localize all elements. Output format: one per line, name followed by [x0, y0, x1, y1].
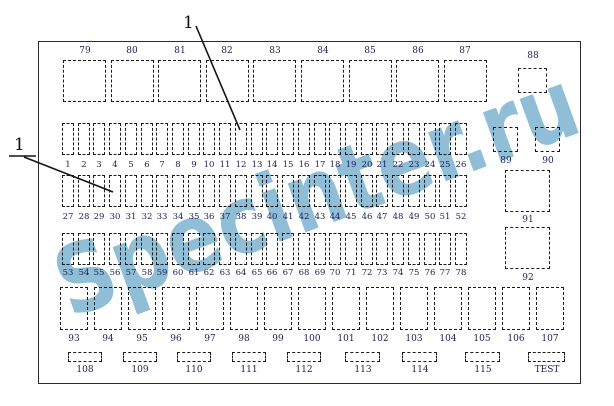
fuse-number: 64 — [233, 268, 249, 278]
terminal-box-label: 108 — [63, 365, 107, 375]
fuse-number: 30 — [107, 212, 123, 222]
fuse-number: 54 — [76, 268, 92, 278]
fuse-number: 74 — [390, 268, 406, 278]
terminal-box-110 — [177, 352, 211, 362]
relay-box-label: 89 — [486, 156, 526, 166]
fuse-slot-66 — [266, 233, 278, 265]
terminal-box-113 — [345, 352, 380, 362]
fuse-number: 9 — [186, 160, 202, 170]
terminal-box-label: 111 — [227, 365, 271, 375]
fuse-number: 69 — [312, 268, 328, 278]
fuse-number: 15 — [280, 160, 296, 170]
fuse-number: 13 — [249, 160, 265, 170]
fuse-number: 12 — [233, 160, 249, 170]
fuse-number: 26 — [453, 160, 469, 170]
fuse-slot-46 — [361, 175, 373, 207]
relay-box-label: 83 — [255, 46, 295, 56]
fuse-number: 32 — [139, 212, 155, 222]
fuse-number: 42 — [296, 212, 312, 222]
fuse-slot-13 — [251, 123, 263, 155]
fuse-slot-1 — [62, 123, 74, 155]
connector-box-94 — [94, 287, 122, 330]
terminal-box-114 — [402, 352, 437, 362]
fuse-slot-15 — [282, 123, 294, 155]
relay-box-label: 79 — [65, 46, 105, 56]
fuse-slot-10 — [203, 123, 215, 155]
fuse-number: 78 — [453, 268, 469, 278]
fuse-number: 49 — [406, 212, 422, 222]
terminal-box-label: 110 — [172, 365, 216, 375]
connector-box-103 — [400, 287, 428, 330]
fuse-number: 23 — [406, 160, 422, 170]
fuse-slot-69 — [314, 233, 326, 265]
relay-box-89 — [493, 127, 518, 152]
fuse-slot-52 — [455, 175, 467, 207]
fuse-slot-18 — [329, 123, 341, 155]
fuse-number: 31 — [123, 212, 139, 222]
fuse-slot-8 — [172, 123, 184, 155]
fuse-slot-3 — [93, 123, 105, 155]
relay-box-label: 88 — [513, 51, 553, 61]
fuse-panel-diagram: Specinter.ru 1 1 79808182838485868788123… — [0, 0, 614, 406]
relay-box-label: 86 — [398, 46, 438, 56]
fuse-number: 62 — [201, 268, 217, 278]
fuse-number: 43 — [312, 212, 328, 222]
terminal-box-111 — [232, 352, 266, 362]
fuse-slot-39 — [251, 175, 263, 207]
fuse-slot-63 — [219, 233, 231, 265]
relay-box-80 — [111, 60, 154, 102]
fuse-number: 5 — [123, 160, 139, 170]
fuse-number: 50 — [422, 212, 438, 222]
terminal-box-label: 109 — [118, 365, 162, 375]
fuse-number: 59 — [154, 268, 170, 278]
fuse-number: 4 — [107, 160, 123, 170]
fuse-number: 58 — [139, 268, 155, 278]
fuse-slot-71 — [345, 233, 357, 265]
fuse-number: 36 — [201, 212, 217, 222]
fuse-number: 7 — [154, 160, 170, 170]
terminal-box-108 — [68, 352, 102, 362]
fuse-slot-64 — [235, 233, 247, 265]
terminal-box-label: 114 — [398, 365, 442, 375]
fuse-slot-12 — [235, 123, 247, 155]
terminal-box-label: 115 — [461, 365, 505, 375]
fuse-slot-32 — [141, 175, 153, 207]
fuse-slot-58 — [141, 233, 153, 265]
fuse-number: 17 — [312, 160, 328, 170]
fuse-number: 44 — [327, 212, 343, 222]
fuse-slot-2 — [78, 123, 90, 155]
fuse-number: 28 — [76, 212, 92, 222]
terminal-box-label: TEST — [525, 365, 569, 375]
fuse-number: 48 — [390, 212, 406, 222]
fuse-slot-24 — [424, 123, 436, 155]
fuse-slot-38 — [235, 175, 247, 207]
relay-box-label: 82 — [207, 46, 247, 56]
fuse-slot-57 — [125, 233, 137, 265]
fuse-slot-9 — [188, 123, 200, 155]
fuse-number: 56 — [107, 268, 123, 278]
fuse-slot-35 — [188, 175, 200, 207]
fuse-slot-4 — [109, 123, 121, 155]
relay-box-label: 81 — [160, 46, 200, 56]
fuse-slot-29 — [93, 175, 105, 207]
fuse-number: 8 — [170, 160, 186, 170]
relay-box-86 — [396, 60, 439, 102]
relay-box-92 — [505, 227, 550, 269]
connector-box-101 — [332, 287, 360, 330]
callout-label-top: 1 — [183, 15, 194, 32]
fuse-slot-54 — [78, 233, 90, 265]
relay-box-79 — [63, 60, 106, 102]
fuse-slot-5 — [125, 123, 137, 155]
fuse-slot-59 — [156, 233, 168, 265]
fuse-slot-49 — [408, 175, 420, 207]
fuse-number: 77 — [437, 268, 453, 278]
fuse-slot-55 — [93, 233, 105, 265]
fuse-number: 63 — [217, 268, 233, 278]
fuse-number: 6 — [139, 160, 155, 170]
fuse-slot-76 — [424, 233, 436, 265]
fuse-slot-50 — [424, 175, 436, 207]
fuse-slot-56 — [109, 233, 121, 265]
relay-box-label: 80 — [112, 46, 152, 56]
fuse-number: 27 — [60, 212, 76, 222]
fuse-number: 51 — [437, 212, 453, 222]
fuse-number: 35 — [186, 212, 202, 222]
fuse-slot-20 — [361, 123, 373, 155]
fuse-slot-68 — [298, 233, 310, 265]
terminal-box-115 — [465, 352, 500, 362]
fuse-number: 38 — [233, 212, 249, 222]
fuse-slot-37 — [219, 175, 231, 207]
relay-box-label: 90 — [528, 156, 568, 166]
connector-box-100 — [298, 287, 326, 330]
fuse-slot-33 — [156, 175, 168, 207]
connector-box-107 — [536, 287, 564, 330]
fuse-slot-73 — [376, 233, 388, 265]
fuse-number: 2 — [76, 160, 92, 170]
fuse-slot-21 — [376, 123, 388, 155]
fuse-slot-28 — [78, 175, 90, 207]
fuse-slot-47 — [376, 175, 388, 207]
fuse-number: 20 — [359, 160, 375, 170]
relay-box-87 — [444, 60, 487, 102]
fuse-number: 68 — [296, 268, 312, 278]
fuse-number: 40 — [264, 212, 280, 222]
fuse-number: 60 — [170, 268, 186, 278]
fuse-slot-72 — [361, 233, 373, 265]
relay-box-91 — [505, 170, 550, 212]
relay-box-label: 91 — [508, 215, 548, 225]
fuse-slot-6 — [141, 123, 153, 155]
fuse-number: 72 — [359, 268, 375, 278]
connector-box-106 — [502, 287, 530, 330]
fuse-slot-43 — [314, 175, 326, 207]
fuse-slot-11 — [219, 123, 231, 155]
terminal-box-label: 112 — [282, 365, 326, 375]
relay-box-label: 84 — [303, 46, 343, 56]
fuse-number: 76 — [422, 268, 438, 278]
connector-box-93 — [60, 287, 88, 330]
relay-box-label: 92 — [508, 273, 548, 283]
fuse-slot-30 — [109, 175, 121, 207]
fuse-slot-16 — [298, 123, 310, 155]
fuse-slot-48 — [392, 175, 404, 207]
relay-box-88 — [518, 68, 547, 93]
fuse-number: 73 — [374, 268, 390, 278]
fuse-number: 39 — [249, 212, 265, 222]
fuse-slot-17 — [314, 123, 326, 155]
fuse-number: 45 — [343, 212, 359, 222]
connector-box-99 — [264, 287, 292, 330]
connector-box-105 — [468, 287, 496, 330]
fuse-slot-70 — [329, 233, 341, 265]
fuse-slot-42 — [298, 175, 310, 207]
fuse-slot-78 — [455, 233, 467, 265]
relay-box-83 — [253, 60, 296, 102]
relay-box-label: 87 — [445, 46, 485, 56]
fuse-slot-61 — [188, 233, 200, 265]
fuse-slot-65 — [251, 233, 263, 265]
relay-box-84 — [301, 60, 344, 102]
fuse-number: 25 — [437, 160, 453, 170]
terminal-box-label: 113 — [341, 365, 385, 375]
relay-box-label: 85 — [350, 46, 390, 56]
fuse-slot-31 — [125, 175, 137, 207]
fuse-number: 33 — [154, 212, 170, 222]
fuse-slot-26 — [455, 123, 467, 155]
fuse-number: 14 — [264, 160, 280, 170]
fuse-number: 75 — [406, 268, 422, 278]
fuse-number: 65 — [249, 268, 265, 278]
fuse-number: 10 — [201, 160, 217, 170]
fuse-number: 34 — [170, 212, 186, 222]
fuse-slot-53 — [62, 233, 74, 265]
fuse-slot-62 — [203, 233, 215, 265]
callout-label-left: 1 — [14, 137, 25, 154]
connector-box-95 — [128, 287, 156, 330]
fuse-slot-34 — [172, 175, 184, 207]
fuse-number: 47 — [374, 212, 390, 222]
fuse-slot-27 — [62, 175, 74, 207]
fuse-number: 52 — [453, 212, 469, 222]
fuse-slot-23 — [408, 123, 420, 155]
fuse-slot-51 — [439, 175, 451, 207]
fuse-slot-40 — [266, 175, 278, 207]
relay-box-90 — [535, 127, 560, 152]
fuse-number: 46 — [359, 212, 375, 222]
connector-box-98 — [230, 287, 258, 330]
fuse-number: 61 — [186, 268, 202, 278]
terminal-box-112 — [287, 352, 321, 362]
fuse-number: 24 — [422, 160, 438, 170]
terminal-box-109 — [123, 352, 157, 362]
connector-box-97 — [196, 287, 224, 330]
fuse-slot-77 — [439, 233, 451, 265]
fuse-number: 71 — [343, 268, 359, 278]
fuse-slot-36 — [203, 175, 215, 207]
fuse-number: 21 — [374, 160, 390, 170]
fuse-number: 22 — [390, 160, 406, 170]
fuse-number: 66 — [264, 268, 280, 278]
fuse-number: 70 — [327, 268, 343, 278]
fuse-slot-60 — [172, 233, 184, 265]
fuse-slot-14 — [266, 123, 278, 155]
connector-box-96 — [162, 287, 190, 330]
fuse-slot-67 — [282, 233, 294, 265]
fuse-slot-7 — [156, 123, 168, 155]
fuse-slot-45 — [345, 175, 357, 207]
fuse-slot-75 — [408, 233, 420, 265]
fuse-number: 18 — [327, 160, 343, 170]
fuse-number: 41 — [280, 212, 296, 222]
fuse-number: 57 — [123, 268, 139, 278]
fuse-number: 55 — [91, 268, 107, 278]
fuse-slot-44 — [329, 175, 341, 207]
fuse-number: 1 — [60, 160, 76, 170]
relay-box-82 — [206, 60, 249, 102]
connector-box-label: 107 — [530, 334, 570, 344]
fuse-number: 11 — [217, 160, 233, 170]
fuse-number: 53 — [60, 268, 76, 278]
fuse-slot-74 — [392, 233, 404, 265]
fuse-number: 37 — [217, 212, 233, 222]
fuse-number: 67 — [280, 268, 296, 278]
fuse-number: 29 — [91, 212, 107, 222]
fuse-slot-22 — [392, 123, 404, 155]
fuse-number: 3 — [91, 160, 107, 170]
fuse-slot-25 — [439, 123, 451, 155]
relay-box-85 — [349, 60, 392, 102]
fuse-slot-19 — [345, 123, 357, 155]
fuse-slot-41 — [282, 175, 294, 207]
connector-box-104 — [434, 287, 462, 330]
fuse-number: 16 — [296, 160, 312, 170]
terminal-box-TEST — [528, 352, 565, 362]
connector-box-102 — [366, 287, 394, 330]
relay-box-81 — [158, 60, 201, 102]
fuse-number: 19 — [343, 160, 359, 170]
